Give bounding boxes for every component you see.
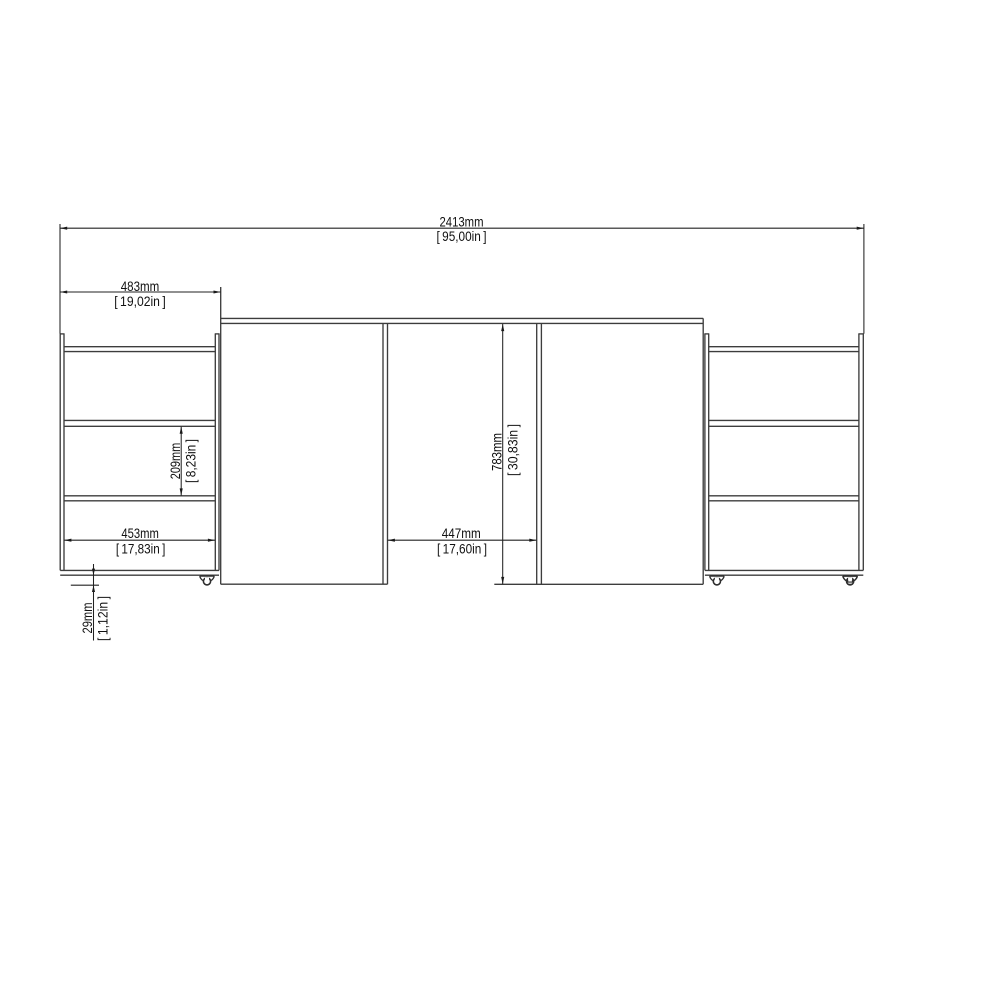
svg-text:[ 17,83in ]: [ 17,83in ] <box>116 541 166 556</box>
svg-text:[ 95,00in ]: [ 95,00in ] <box>437 229 487 244</box>
svg-text:[ 17,60in ]: [ 17,60in ] <box>437 541 487 556</box>
svg-text:783mm: 783mm <box>489 433 504 471</box>
svg-text:29mm: 29mm <box>80 603 95 634</box>
svg-text:2413mm: 2413mm <box>440 215 484 230</box>
svg-text:447mm: 447mm <box>442 526 481 541</box>
svg-text:[ 19,02in ]: [ 19,02in ] <box>114 294 166 309</box>
svg-text:453mm: 453mm <box>121 526 159 541</box>
svg-text:[ 30,83in ]: [ 30,83in ] <box>505 424 520 476</box>
svg-text:483mm: 483mm <box>121 279 160 294</box>
svg-text:[ 1,12in ]: [ 1,12in ] <box>96 596 111 641</box>
svg-text:[ 8,23in ]: [ 8,23in ] <box>183 439 198 483</box>
svg-text:209mm: 209mm <box>168 443 183 480</box>
